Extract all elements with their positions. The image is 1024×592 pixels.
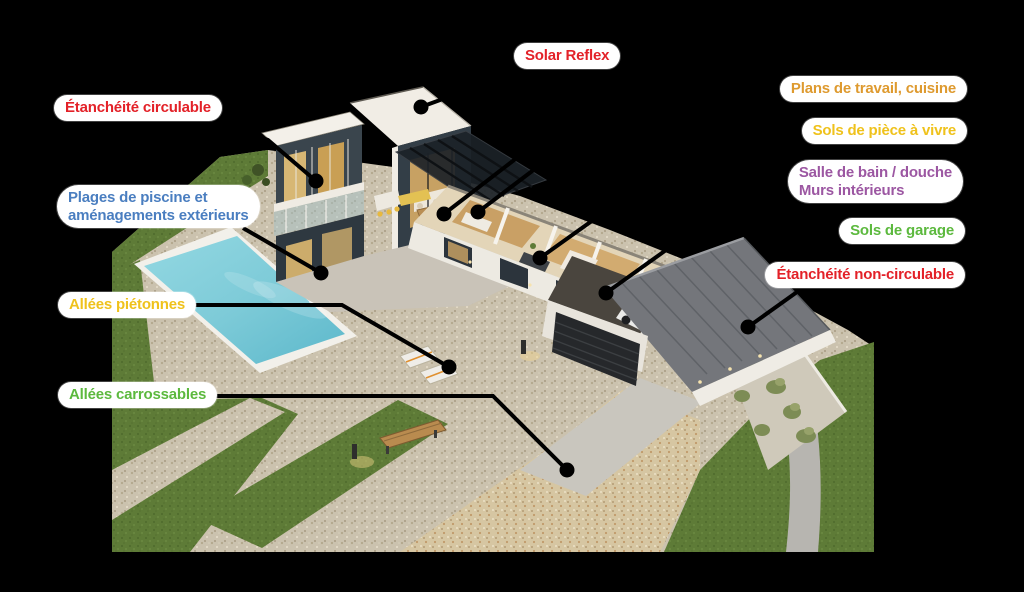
label-text-allees-carrossables-line1: Allées carrossables: [69, 386, 206, 403]
label-allees-carrossables: Allées carrossables: [58, 382, 217, 408]
label-text-etancheite-non-circulable-line1: Étanchéité non-circulable: [776, 266, 954, 283]
label-allees-pietonnes: Allées piétonnes: [58, 292, 196, 318]
label-layer: Solar ReflexÉtanchéité circulablePlages …: [0, 0, 1024, 592]
infographic-stage: Solar ReflexÉtanchéité circulablePlages …: [0, 0, 1024, 592]
label-solar-reflex: Solar Reflex: [514, 43, 620, 69]
label-text-sols-de-piece-a-vivre-line1: Sols de pièce à vivre: [813, 122, 956, 139]
label-text-plages-piscine-amenagements-line1: Plages de piscine et: [68, 189, 207, 206]
label-salle-de-bain-murs-interieurs: Salle de bain / doucheMurs intérieurs: [788, 160, 963, 203]
label-text-sols-de-garage-line1: Sols de garage: [850, 222, 954, 239]
label-plages-piscine-amenagements: Plages de piscine etaménagements extérie…: [57, 185, 260, 228]
label-text-etancheite-circulable-line1: Étanchéité circulable: [65, 99, 211, 116]
label-etancheite-circulable: Étanchéité circulable: [54, 95, 222, 121]
label-sols-de-piece-a-vivre: Sols de pièce à vivre: [802, 118, 967, 144]
label-text-salle-de-bain-murs-interieurs-line2: Murs intérieurs: [799, 182, 904, 199]
label-text-allees-pietonnes-line1: Allées piétonnes: [69, 296, 185, 313]
label-text-solar-reflex-line1: Solar Reflex: [525, 47, 609, 64]
label-text-plans-de-travail-cuisine-line1: Plans de travail, cuisine: [791, 80, 956, 97]
label-text-salle-de-bain-murs-interieurs-line1: Salle de bain / douche: [799, 164, 952, 181]
label-etancheite-non-circulable: Étanchéité non-circulable: [765, 262, 965, 288]
label-sols-de-garage: Sols de garage: [839, 218, 965, 244]
label-text-plages-piscine-amenagements-line2: aménagements extérieurs: [68, 207, 249, 224]
label-plans-de-travail-cuisine: Plans de travail, cuisine: [780, 76, 967, 102]
